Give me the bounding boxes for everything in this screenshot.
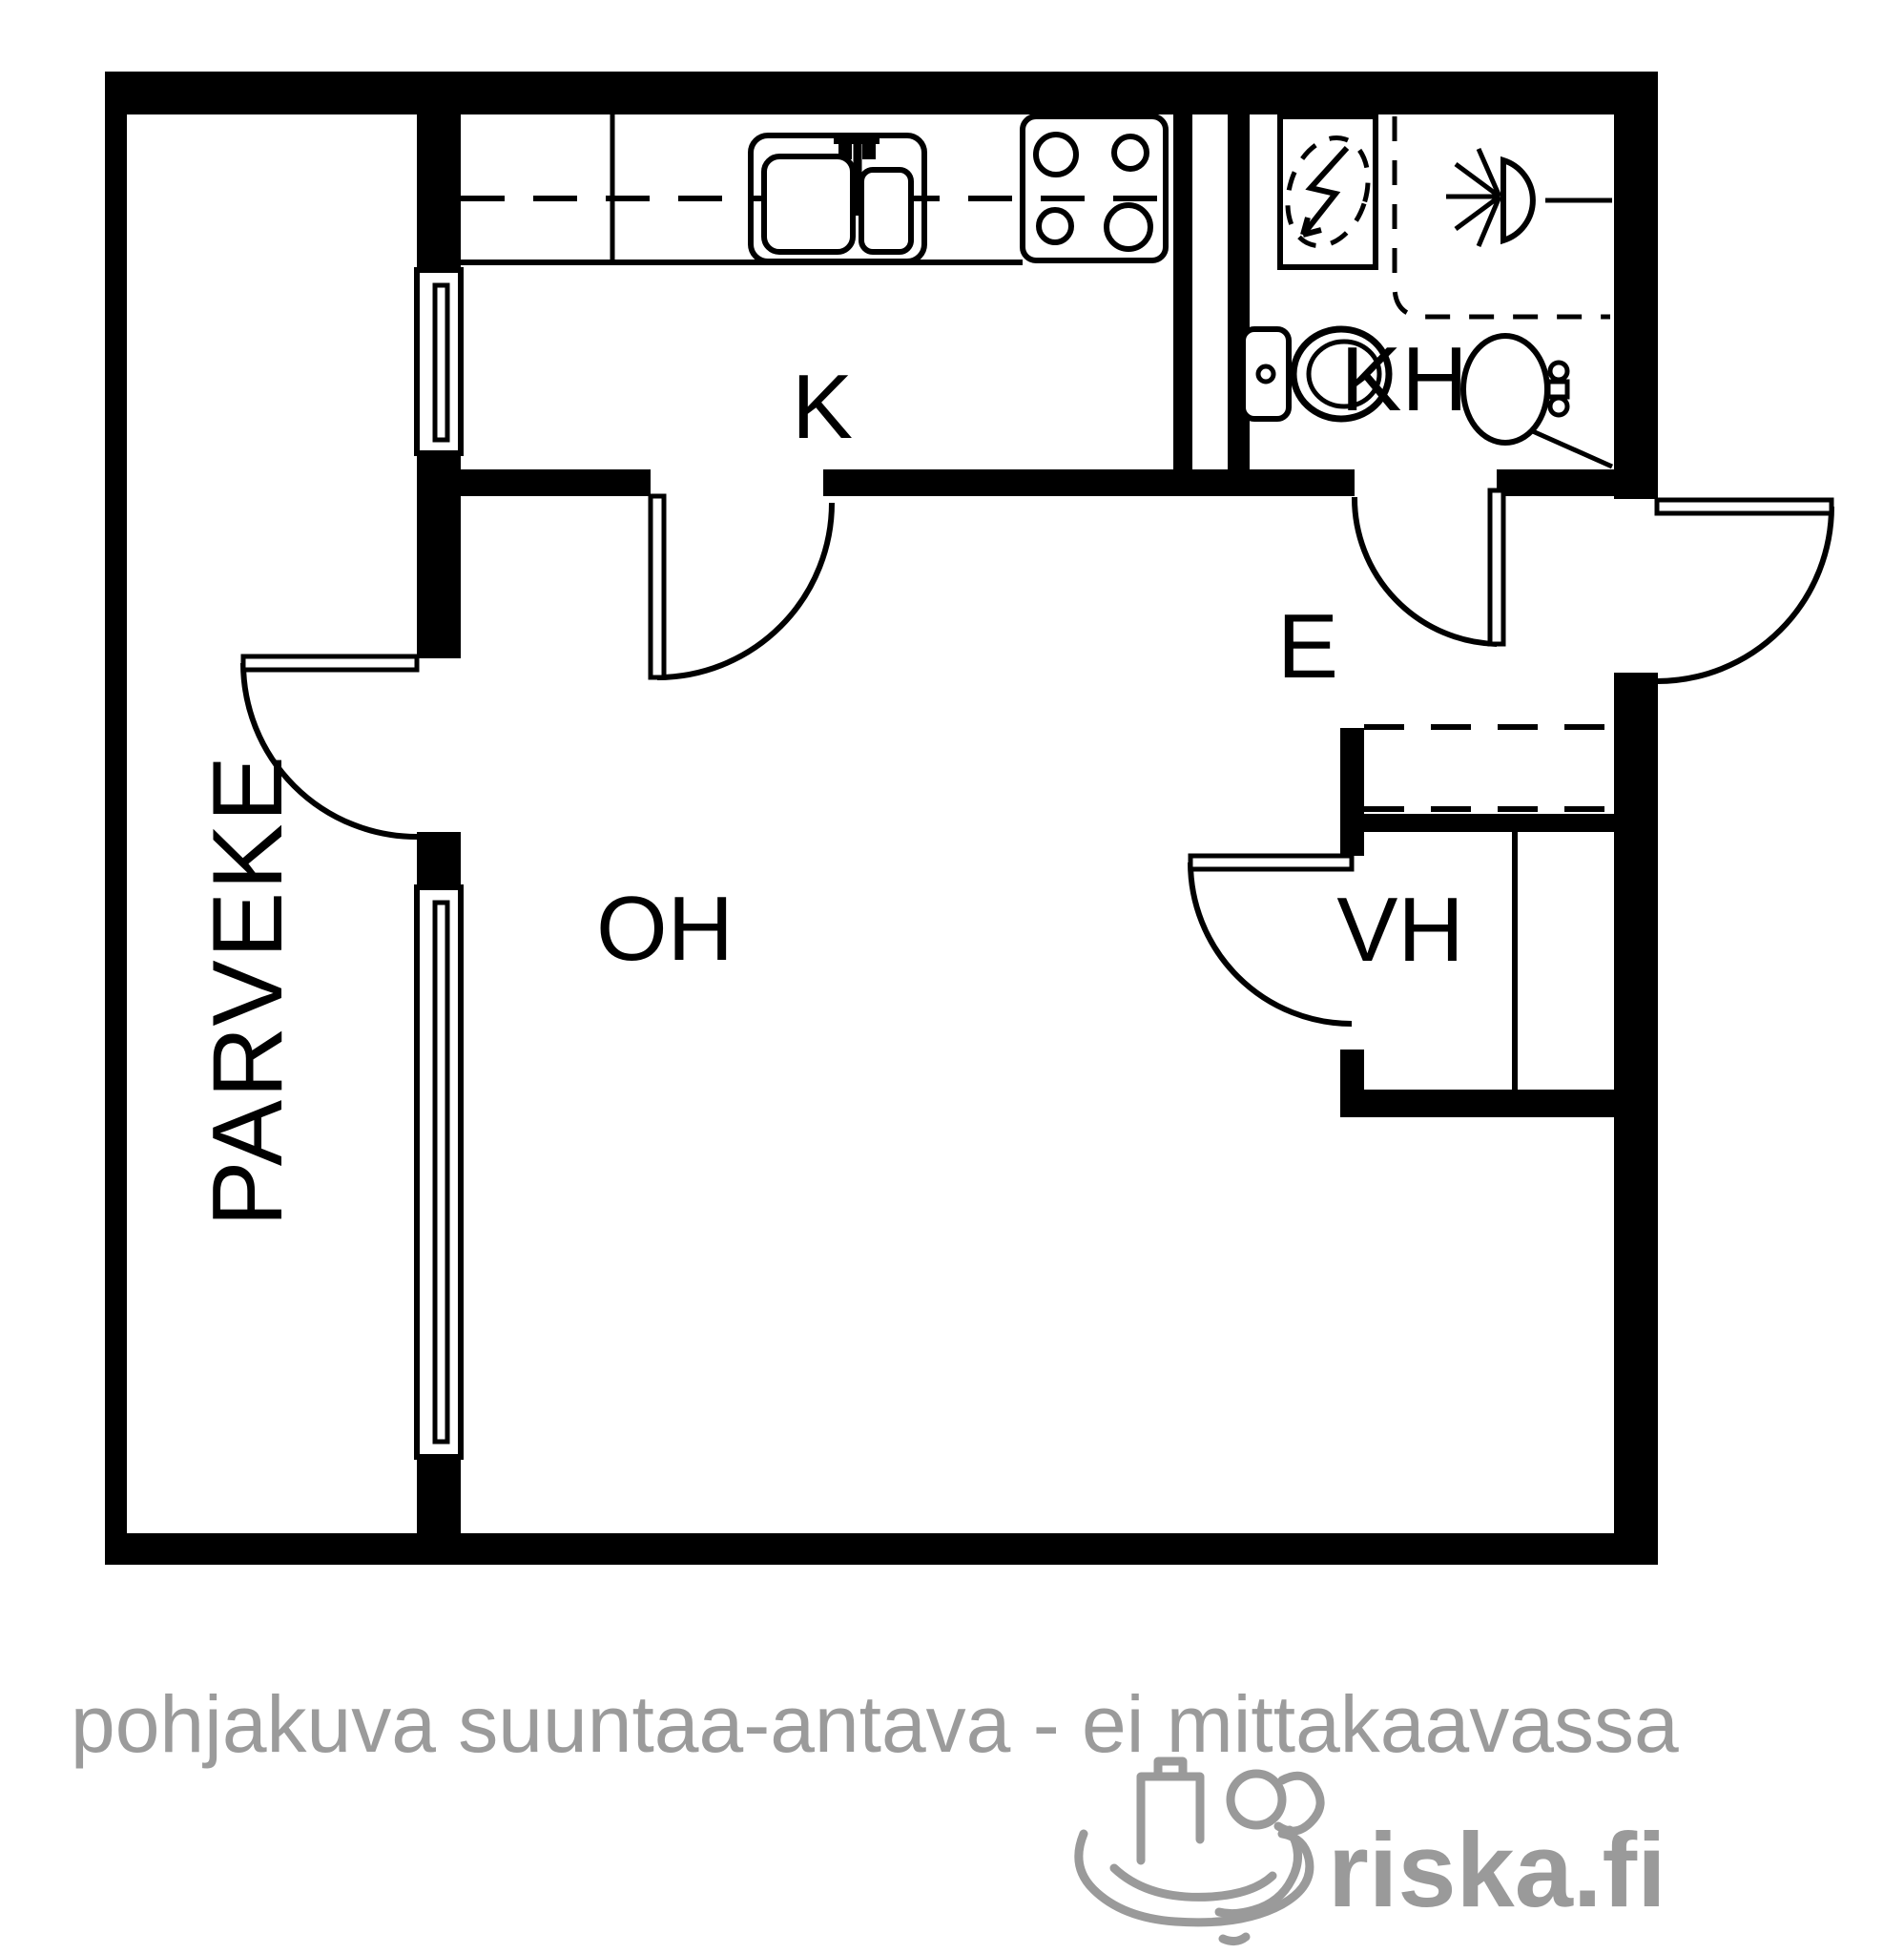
wall-left-exterior [105, 72, 127, 1565]
watermark-brand-text: riska.fi [1328, 1812, 1666, 1929]
kitchen-balcony-window-icon [417, 270, 461, 453]
label-hall: E [1277, 595, 1338, 697]
label-kitchen: K [792, 356, 853, 458]
wall-right-lower [1614, 673, 1658, 1565]
wall-top-exterior [105, 72, 1658, 114]
wall-kitchen-bath-divider-1 [1173, 114, 1192, 469]
label-balcony: PARVEKE [193, 754, 303, 1227]
wall-bath-bottom-right [1497, 469, 1614, 496]
wall-closet-top [1364, 814, 1614, 832]
wall-balcony-divider-a [417, 114, 461, 270]
wall-balcony-divider-b [417, 453, 461, 658]
wall-kitchen-bottom-left [461, 469, 651, 496]
label-closet: VH [1336, 879, 1463, 981]
sink-basins [764, 156, 911, 252]
wall-right-upper [1614, 72, 1658, 499]
wall-balcony-divider-d [417, 1457, 461, 1533]
washing-machine-icon [1274, 116, 1381, 267]
wall-bottom-exterior [105, 1533, 1658, 1565]
floor-plan-page: K KH E VH OH PARVEKE pohjakuva suuntaa-a… [0, 0, 1904, 1954]
wall-closet-stub-top [1340, 728, 1364, 856]
wall-balcony-divider-c [417, 832, 461, 887]
label-bathroom: KH [1340, 328, 1467, 430]
floor-plan-canvas: K KH E VH OH PARVEKE pohjakuva suuntaa-a… [0, 0, 1904, 1954]
label-living-room: OH [596, 878, 734, 980]
living-room-balcony-window-icon [417, 887, 461, 1457]
wall-kitchen-bottom-right [823, 469, 1355, 496]
wall-closet-bottom [1340, 1090, 1614, 1117]
disclaimer-text: pohjakuva suuntaa-antava - ei mittakaava… [71, 1679, 1679, 1769]
